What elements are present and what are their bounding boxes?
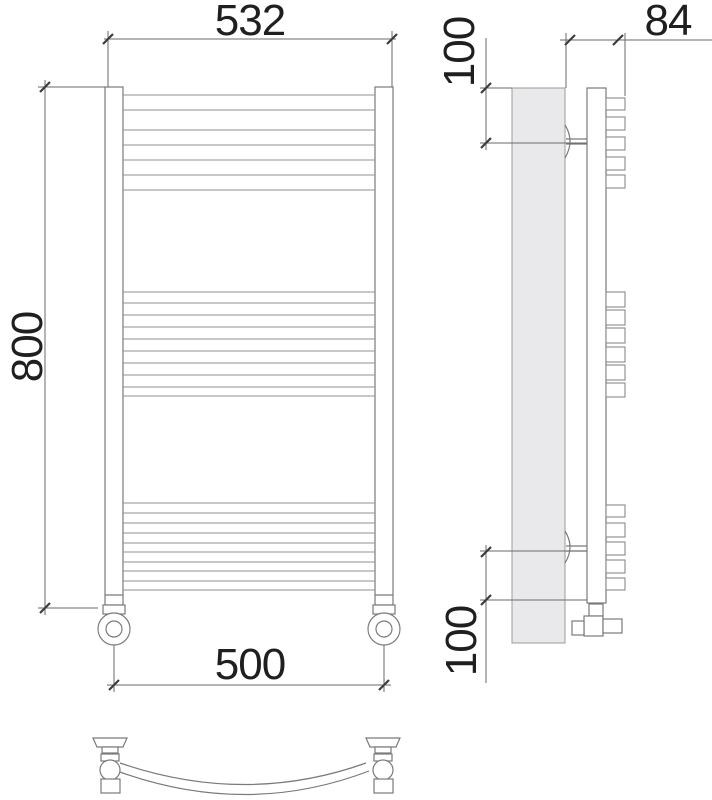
dimension-label-500: 500 [215, 640, 285, 689]
left-fitting-neck-1 [102, 747, 118, 753]
side-collector-plate [512, 88, 565, 643]
valve-body [584, 616, 603, 636]
side-view [512, 88, 625, 643]
right-foot-union-circle [368, 613, 400, 645]
front-rungs-middle-group [123, 292, 375, 396]
dimension-label-532: 532 [215, 0, 285, 45]
front-right-foot [368, 595, 400, 692]
left-fitting-flange [93, 738, 127, 747]
valve-nut [589, 604, 603, 616]
dimension-top-width: 532 [103, 0, 397, 87]
left-fitting-tail [101, 779, 120, 793]
right-fitting-neck-1 [375, 747, 391, 753]
left-foot-union-circle [98, 613, 130, 645]
bottom-right-fitting [366, 738, 400, 793]
side-post-profile [587, 88, 606, 603]
right-fitting-tail [374, 779, 393, 793]
curved-rail-outer-arc [120, 763, 366, 785]
dimension-bottom-width: 500 [107, 640, 391, 690]
dimension-label-800: 800 [3, 312, 52, 382]
front-rungs-top-group [123, 95, 375, 190]
front-left-post [105, 87, 123, 605]
side-bottom-valve [572, 604, 622, 636]
side-teeth-bottom-group [606, 505, 625, 590]
front-right-post [375, 87, 393, 605]
side-bottom-bracket [565, 531, 587, 563]
dimension-label-84: 84 [645, 0, 692, 45]
dimension-side-depth: 84 [560, 0, 712, 96]
side-top-bracket [565, 125, 587, 158]
bottom-left-fitting [93, 738, 127, 793]
valve-outlet [603, 619, 622, 633]
left-fitting-union [100, 760, 120, 780]
bottom-view [93, 738, 400, 795]
dimension-height: 800 [3, 80, 105, 615]
curved-rail-inner-arc [117, 771, 369, 795]
dimension-label-100-top: 100 [435, 17, 484, 87]
right-fitting-union [373, 760, 393, 780]
front-left-foot [98, 595, 130, 692]
side-teeth-middle-group [606, 292, 625, 397]
front-rungs-bottom-group [123, 503, 375, 590]
valve-knob [572, 621, 584, 635]
drawing-svg: 532 800 500 100 84 [0, 0, 712, 800]
dimension-label-100-bottom: 100 [437, 606, 486, 676]
side-teeth-top-group [606, 98, 625, 188]
technical-drawing: 532 800 500 100 84 [0, 0, 712, 800]
right-fitting-flange [366, 738, 400, 747]
front-view [98, 87, 400, 692]
